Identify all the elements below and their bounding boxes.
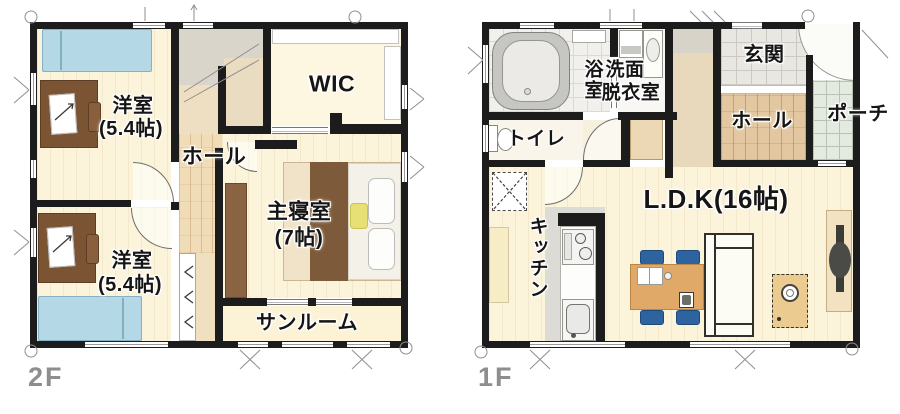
room-label-hall-2f: ホール [182,147,247,168]
floorplan-canvas: 洋室 (5.4帖) WIC ホール 主寝室 (7帖) 洋室 (5.4帖) サンル… [0,0,900,414]
wall [171,22,179,162]
sofa-arm-line-top [715,247,753,249]
window [482,45,489,83]
wall [853,22,860,348]
room-label-hall-1f: ホール [731,111,793,131]
table-placemats [637,267,663,285]
master-bed-pillow-2 [368,228,395,270]
closet-interior [196,253,215,341]
bed-bottom [38,296,142,341]
closet-doors [179,253,196,341]
room-label-bath: 浴室 [583,59,602,101]
room-label-master-size: (7帖) [275,228,324,249]
window [85,341,168,348]
wall [330,113,342,134]
wic-sliding-door [272,127,328,134]
entrance-step [718,85,806,94]
wall [215,148,223,341]
bed-bottom-pillow-line [122,298,124,339]
wall [30,22,37,348]
wic-shelf-top [272,29,399,44]
dining-chair [676,250,700,265]
window [30,73,37,105]
master-cabinet [225,183,247,298]
bath-counter [572,30,606,43]
window [818,160,846,167]
wall [713,160,813,167]
floor-label-1f: 1F [478,362,514,393]
refrigerator [492,172,527,211]
table-plate [664,272,672,280]
master-bed-pillow-1 [368,178,395,224]
desk-bottom-chair [86,234,99,264]
wall [218,126,271,134]
room-label-washroom-line1: 洗面 [605,61,644,80]
entrance-window [732,22,762,29]
window [401,152,408,182]
master-bed-yellow-pillow [350,203,368,229]
window [690,341,790,348]
room-label-kitchen: キッチン [528,216,547,300]
stove-burner-2 [579,247,592,260]
stove-burner-1 [575,233,586,244]
room-label-porch: ポーチ [827,104,889,124]
washing-machine-front [621,46,641,54]
wall [308,298,316,306]
desk-bottom-paper [47,226,76,268]
window [30,228,37,257]
stove-grate [564,233,572,260]
wall [596,226,605,341]
wall [30,22,408,29]
wall [482,160,545,167]
wall [558,213,605,226]
tv-screen [829,242,851,278]
room-label-wic: WIC [309,73,355,96]
table-basket-inner [682,295,691,305]
wall [621,120,630,163]
wall [268,341,282,348]
wall [222,341,238,348]
wall [30,200,131,207]
wall [806,55,813,167]
sofa-back-line [714,235,716,335]
wall [342,124,401,134]
wall [215,298,267,306]
room-label-master-name: 主寝室 [267,202,332,223]
room-label-ldk: L.D.K(16帖) [643,186,788,212]
wall [263,22,271,134]
room-label-sunroom: サンルーム [256,313,358,333]
window [482,125,489,152]
wall [333,341,347,348]
wall [255,140,297,149]
window [600,22,642,29]
sunroom-window [222,341,401,348]
wall [583,160,630,167]
room-label-washroom-line2: 脱衣室 [602,84,661,103]
window [520,22,554,29]
vanity-sink-bowl [646,38,660,62]
desk-top-paper [49,93,78,135]
round-table-inner [786,289,794,297]
wall [352,298,408,306]
sliding-door [316,299,352,305]
dining-chair [640,250,664,265]
wall [482,112,583,120]
sofa-arm-line-bottom [715,323,753,325]
kitchen-sink-basin [566,304,590,334]
window [183,22,213,29]
linen-cabinet [630,118,663,160]
wic-shelf-right [384,46,401,120]
bed-top-pillow-line [60,31,62,70]
bathtub-drain [524,88,531,95]
room-label-entrance: 玄関 [744,45,785,65]
kitchen-faucet [571,333,576,338]
room-label-bedroom-top-size: (5.4帖) [99,119,163,139]
stairs-treads-2f [224,58,263,134]
wall [713,22,721,160]
dining-chair [676,310,700,325]
wall [171,202,179,210]
bathtub-inner [502,40,560,102]
wall [665,22,673,178]
wall [390,341,401,348]
window [133,22,165,29]
room-label-bedroom-bottom-size: (5.4帖) [98,275,162,295]
window [30,160,37,178]
kitchen-back-counter [489,227,509,303]
wall [218,66,226,134]
wall [762,22,805,29]
window [530,341,625,348]
sliding-door [267,299,308,305]
room-label-toilet: トイレ [507,130,566,149]
floor-label-2f: 2F [28,362,64,393]
rug-dot [777,317,781,321]
window [401,85,408,109]
room-label-bedroom-top-name: 洋室 [113,96,154,116]
dining-chair [640,310,664,325]
table-placemat-divider [649,267,650,285]
stairs-1f-top [673,29,713,53]
sofa [704,233,754,337]
room-label-bedroom-bottom-name: 洋室 [112,251,153,271]
bed-top [42,29,152,72]
